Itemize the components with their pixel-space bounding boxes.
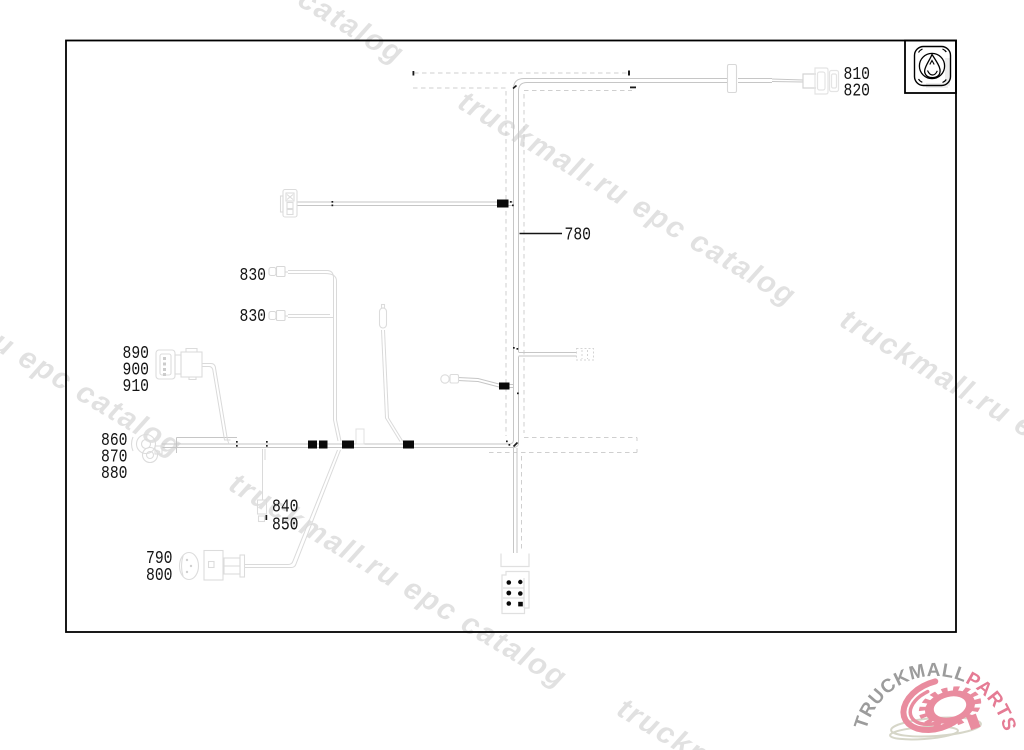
svg-text:truckmall.ru epc catalog: truckmall.ru epc catalog — [60, 0, 410, 71]
svg-text:800: 800 — [146, 566, 173, 586]
svg-text:truckmall.ru epc catalog: truckmall.ru epc catalog — [452, 85, 802, 313]
svg-text:910: 910 — [123, 377, 150, 397]
svg-text:830: 830 — [240, 266, 267, 286]
svg-text:780: 780 — [565, 226, 592, 246]
svg-text:truckmall.ru epc catalog: truckmall.ru epc catalog — [834, 303, 1024, 531]
svg-text:840: 840 — [272, 498, 299, 518]
svg-text:830: 830 — [240, 307, 267, 327]
svg-text:850: 850 — [272, 516, 299, 536]
svg-text:820: 820 — [844, 82, 871, 102]
svg-text:880: 880 — [101, 464, 128, 484]
